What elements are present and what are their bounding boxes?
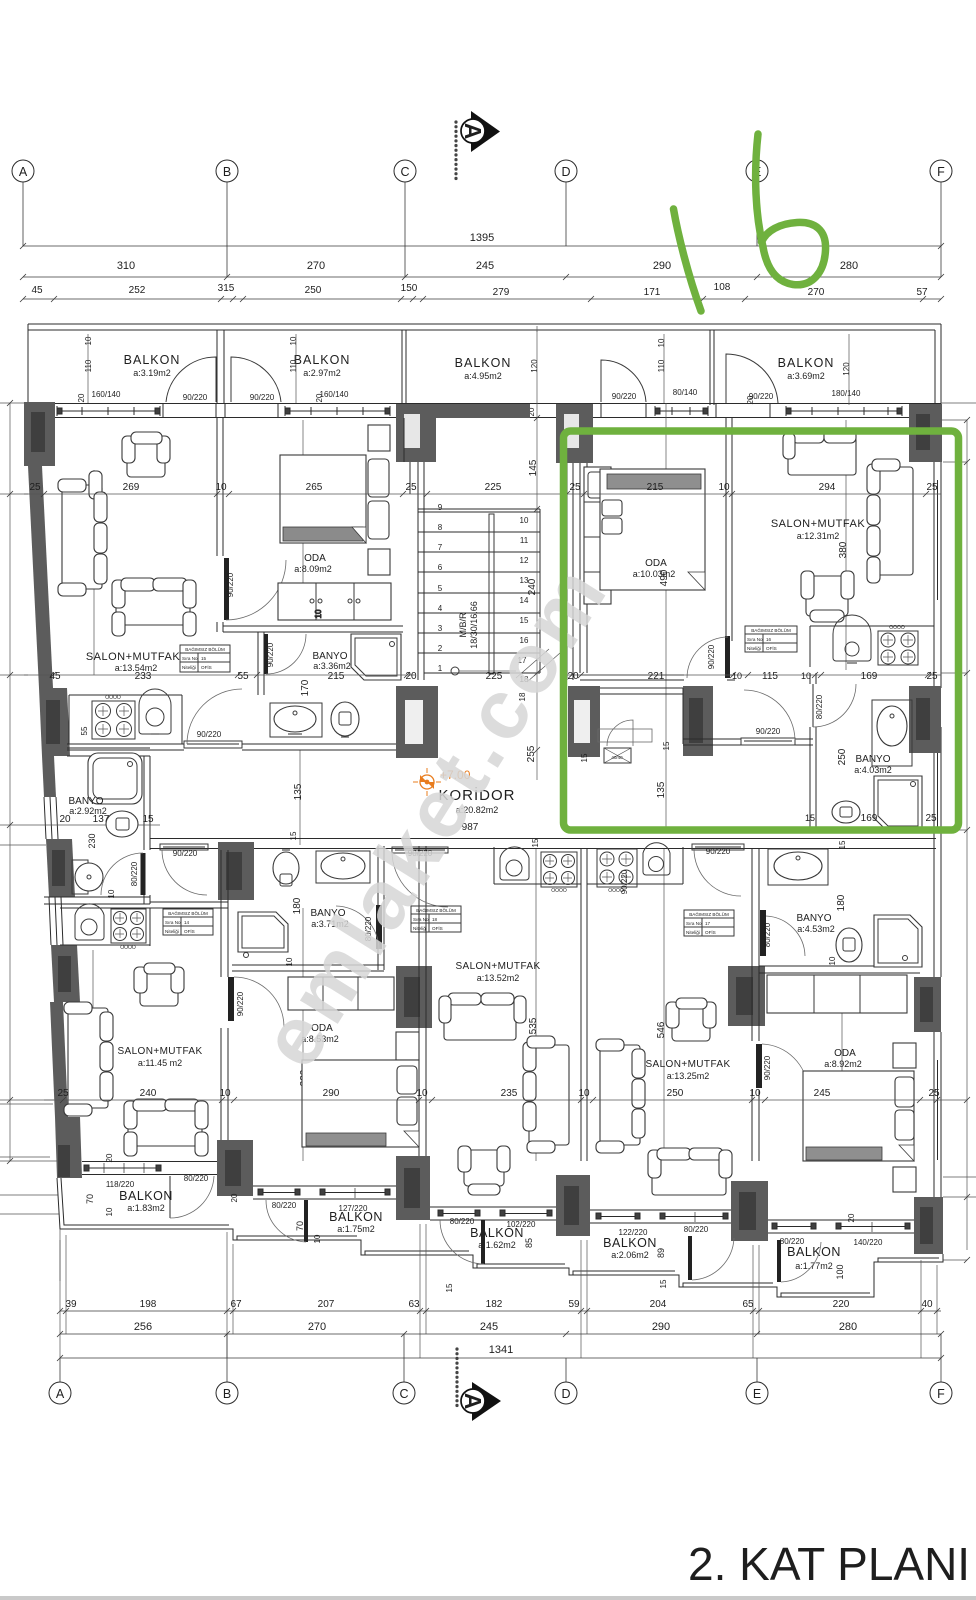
svg-text:BAĞIMSIZ BÖLÜM: BAĞIMSIZ BÖLÜM: [168, 910, 208, 916]
svg-text:3: 3: [438, 624, 443, 633]
svg-text:280: 280: [839, 1321, 857, 1333]
svg-text:BALKON: BALKON: [778, 356, 835, 370]
svg-text:OOOO: OOOO: [608, 888, 624, 894]
svg-text:240: 240: [140, 1088, 157, 1099]
svg-text:BALKON: BALKON: [124, 353, 181, 367]
svg-text:90/220: 90/220: [226, 572, 235, 597]
svg-text:118/220: 118/220: [106, 1180, 135, 1189]
svg-text:80/220: 80/220: [130, 861, 139, 886]
svg-text:67: 67: [230, 1299, 242, 1310]
svg-text:290: 290: [653, 260, 671, 272]
svg-text:6: 6: [438, 563, 443, 572]
svg-text:a:2.92m2: a:2.92m2: [69, 806, 107, 816]
svg-text:150: 150: [401, 283, 418, 294]
svg-text:BALKON: BALKON: [455, 356, 512, 370]
svg-text:20: 20: [405, 671, 417, 682]
svg-text:12: 12: [520, 556, 529, 565]
svg-text:ODA: ODA: [834, 1048, 856, 1059]
svg-text:180: 180: [292, 897, 303, 914]
svg-text:90/220: 90/220: [197, 730, 222, 739]
svg-text:160/140: 160/140: [92, 390, 121, 399]
svg-text:SALON+MUTFAK: SALON+MUTFAK: [645, 1059, 730, 1070]
svg-text:110: 110: [289, 359, 298, 372]
svg-text:a:8.92m2: a:8.92m2: [824, 1059, 862, 1069]
svg-text:10: 10: [105, 1207, 114, 1216]
svg-text:15: 15: [289, 831, 298, 840]
svg-text:SALON+MUTFAK: SALON+MUTFAK: [117, 1046, 202, 1057]
svg-text:15: 15: [531, 838, 540, 847]
svg-text:15: 15: [662, 741, 671, 750]
svg-text:90/220: 90/220: [763, 1055, 772, 1080]
svg-text:OFİS: OFİS: [432, 925, 443, 931]
svg-text:57: 57: [916, 287, 928, 298]
svg-text:120: 120: [530, 359, 539, 373]
svg-text:D: D: [561, 165, 570, 179]
svg-text:11: 11: [520, 536, 529, 545]
svg-text:215: 215: [328, 671, 345, 682]
svg-text:OOOO: OOOO: [120, 945, 136, 951]
svg-text:20: 20: [230, 1193, 239, 1202]
svg-text:20: 20: [77, 393, 86, 402]
svg-text:A: A: [19, 165, 28, 179]
svg-text:10: 10: [313, 1234, 322, 1243]
svg-text:180/140: 180/140: [832, 389, 861, 398]
svg-text:C: C: [399, 1387, 408, 1401]
svg-text:270: 270: [307, 260, 325, 272]
svg-text:10: 10: [289, 336, 298, 345]
svg-text:10: 10: [416, 1088, 428, 1099]
svg-text:279: 279: [493, 287, 510, 298]
svg-text:BANYO: BANYO: [796, 913, 831, 924]
svg-text:90/220: 90/220: [173, 849, 198, 858]
svg-text:245: 245: [480, 1321, 498, 1333]
svg-text:90/220: 90/220: [183, 393, 208, 402]
svg-text:a:1.83m2: a:1.83m2: [127, 1203, 165, 1213]
svg-text:a:2.06m2: a:2.06m2: [611, 1250, 649, 1260]
svg-text:F: F: [937, 165, 945, 179]
svg-text:10: 10: [657, 338, 666, 347]
svg-text:SALON+MUTFAK: SALON+MUTFAK: [455, 961, 540, 972]
svg-text:a:1.77m2: a:1.77m2: [795, 1261, 833, 1271]
svg-text:235: 235: [501, 1088, 518, 1099]
svg-text:25: 25: [925, 813, 937, 824]
svg-text:25: 25: [926, 482, 938, 493]
svg-text:Niteliği: Niteliği: [747, 646, 761, 651]
svg-text:Sıra No: Sıra No: [747, 637, 763, 642]
svg-text:380: 380: [838, 541, 849, 558]
svg-text:10: 10: [732, 671, 742, 681]
svg-text:a:3.36m2: a:3.36m2: [313, 661, 351, 671]
svg-text:250: 250: [667, 1088, 684, 1099]
svg-text:171: 171: [644, 287, 661, 298]
svg-text:233: 233: [135, 671, 152, 682]
svg-text:OFİS: OFİS: [705, 929, 716, 935]
svg-text:a:4.53m2: a:4.53m2: [797, 924, 835, 934]
svg-text:B: B: [223, 165, 231, 179]
svg-text:10: 10: [215, 482, 227, 493]
svg-text:9: 9: [438, 503, 443, 512]
svg-text:10: 10: [107, 889, 116, 898]
svg-text:15: 15: [659, 1279, 668, 1288]
svg-text:169: 169: [861, 671, 878, 682]
svg-text:39: 39: [65, 1299, 77, 1310]
svg-text:310: 310: [117, 260, 135, 272]
svg-text:490: 490: [659, 569, 670, 586]
svg-text:15: 15: [838, 840, 847, 849]
svg-text:265: 265: [306, 482, 323, 493]
svg-text:BALKON: BALKON: [294, 353, 351, 367]
svg-text:25: 25: [405, 482, 417, 493]
svg-text:10: 10: [520, 516, 529, 525]
svg-text:a:4.95m2: a:4.95m2: [464, 371, 502, 381]
svg-text:122/220: 122/220: [619, 1228, 648, 1237]
svg-text:55: 55: [237, 671, 249, 682]
svg-text:198: 198: [140, 1299, 157, 1310]
svg-text:SALON+MUTFAK: SALON+MUTFAK: [86, 651, 180, 663]
svg-text:ODA: ODA: [304, 553, 326, 564]
svg-text:A: A: [460, 123, 486, 140]
svg-text:OOOO: OOOO: [551, 888, 567, 894]
svg-text:B: B: [223, 1387, 231, 1401]
svg-text:230: 230: [87, 833, 97, 848]
svg-text:315: 315: [218, 283, 235, 294]
svg-text:15: 15: [580, 753, 589, 762]
svg-text:7: 7: [438, 543, 443, 552]
svg-text:a:13.25m2: a:13.25m2: [667, 1071, 710, 1081]
svg-text:40/40: 40/40: [611, 755, 623, 760]
svg-text:8: 8: [438, 523, 443, 532]
svg-text:90/220: 90/220: [707, 644, 716, 669]
svg-text:a:11.45 m2: a:11.45 m2: [138, 1058, 182, 1068]
svg-text:ODA: ODA: [645, 558, 667, 569]
svg-text:135: 135: [293, 783, 304, 800]
svg-text:110: 110: [657, 359, 666, 372]
svg-text:5: 5: [438, 584, 443, 593]
svg-text:294: 294: [819, 482, 836, 493]
svg-text:25: 25: [569, 482, 581, 493]
svg-text:546: 546: [656, 1021, 667, 1038]
svg-text:204: 204: [650, 1299, 667, 1310]
svg-text:20: 20: [315, 393, 324, 402]
svg-text:A: A: [460, 1393, 486, 1410]
svg-text:4: 4: [438, 604, 443, 613]
svg-text:1341: 1341: [489, 1344, 513, 1356]
svg-text:F: F: [937, 1387, 945, 1401]
svg-text:170: 170: [300, 679, 311, 696]
svg-text:16: 16: [766, 637, 772, 642]
svg-text:250: 250: [305, 285, 322, 296]
svg-text:55: 55: [80, 726, 89, 735]
svg-text:M/B/R: M/B/R: [458, 612, 468, 638]
svg-text:BALKON: BALKON: [603, 1236, 657, 1250]
svg-text:a:3.69m2: a:3.69m2: [787, 371, 825, 381]
svg-text:10: 10: [219, 1088, 231, 1099]
svg-text:250: 250: [837, 748, 848, 765]
svg-text:127/220: 127/220: [339, 1204, 368, 1213]
svg-text:OOOO: OOOO: [889, 625, 905, 631]
svg-text:25: 25: [928, 1088, 940, 1099]
svg-text:169: 169: [861, 813, 878, 824]
svg-text:OFİS: OFİS: [201, 664, 212, 670]
svg-text:25: 25: [29, 482, 41, 493]
svg-text:90/220: 90/220: [612, 392, 637, 401]
svg-text:252: 252: [129, 285, 146, 296]
svg-text:a:8.09m2: a:8.09m2: [294, 564, 332, 574]
svg-text:280: 280: [840, 260, 858, 272]
svg-text:45: 45: [31, 285, 43, 296]
svg-text:80/220: 80/220: [184, 1174, 209, 1183]
svg-text:245: 245: [814, 1088, 831, 1099]
svg-text:270: 270: [308, 1321, 326, 1333]
svg-text:25: 25: [926, 671, 938, 682]
svg-text:207: 207: [318, 1299, 335, 1310]
svg-text:BAĞIMSIZ BÖLÜM: BAĞIMSIZ BÖLÜM: [185, 646, 225, 652]
svg-text:BANYO: BANYO: [855, 754, 890, 765]
svg-text:100: 100: [835, 1264, 845, 1279]
svg-text:102/220: 102/220: [507, 1220, 536, 1229]
svg-text:10: 10: [314, 609, 323, 618]
svg-text:70: 70: [85, 1194, 95, 1204]
svg-text:OFİS: OFİS: [184, 928, 195, 934]
svg-text:BAĞIMSIZ BÖLÜM: BAĞIMSIZ BÖLÜM: [751, 627, 791, 633]
svg-text:Sıra No: Sıra No: [686, 921, 702, 926]
svg-text:245: 245: [476, 260, 494, 272]
svg-text:D: D: [561, 1387, 570, 1401]
svg-text:80/140: 80/140: [673, 388, 698, 397]
svg-text:90/220: 90/220: [706, 847, 731, 856]
svg-text:290: 290: [652, 1321, 670, 1333]
svg-text:90/220: 90/220: [266, 642, 275, 667]
svg-text:70: 70: [295, 1221, 305, 1231]
svg-text:10: 10: [749, 1088, 761, 1099]
svg-text:182: 182: [486, 1299, 503, 1310]
svg-text:a:13.52m2: a:13.52m2: [477, 973, 520, 983]
svg-text:15: 15: [142, 814, 154, 825]
svg-text:180: 180: [836, 894, 847, 911]
svg-text:BALKON: BALKON: [787, 1245, 841, 1259]
svg-text:80/220: 80/220: [763, 922, 772, 947]
svg-text:90/220: 90/220: [756, 727, 781, 736]
svg-text:18/30/16.66: 18/30/16.66: [469, 601, 479, 649]
svg-text:Niteliği: Niteliği: [165, 929, 179, 934]
svg-text:256: 256: [134, 1321, 152, 1333]
svg-text:10: 10: [84, 336, 93, 345]
svg-text:15: 15: [201, 656, 207, 661]
svg-text:220: 220: [833, 1299, 850, 1310]
svg-text:535: 535: [528, 1017, 539, 1034]
svg-text:Niteliği: Niteliği: [182, 665, 196, 670]
svg-text:2. KAT PLANI: 2. KAT PLANI: [688, 1538, 970, 1590]
svg-text:80/220: 80/220: [684, 1225, 709, 1234]
svg-text:A: A: [56, 1387, 65, 1401]
svg-text:a:2.97m2: a:2.97m2: [303, 368, 341, 378]
svg-text:80/220: 80/220: [450, 1217, 475, 1226]
svg-text:85: 85: [524, 1238, 534, 1248]
svg-text:Sıra No: Sıra No: [165, 920, 181, 925]
svg-text:C: C: [400, 165, 409, 179]
svg-text:BALKON: BALKON: [119, 1189, 173, 1203]
svg-text:90/220: 90/220: [250, 393, 275, 402]
svg-text:270: 270: [808, 287, 825, 298]
svg-text:225: 225: [485, 482, 502, 493]
svg-text:10: 10: [828, 956, 837, 965]
svg-text:18: 18: [432, 917, 438, 922]
svg-text:80/220: 80/220: [272, 1201, 297, 1210]
svg-text:40: 40: [921, 1299, 933, 1310]
svg-text:25: 25: [57, 1088, 69, 1099]
svg-text:1395: 1395: [470, 232, 494, 244]
svg-text:90/220: 90/220: [236, 991, 245, 1016]
svg-text:BAĞIMSIZ BÖLÜM: BAĞIMSIZ BÖLÜM: [689, 911, 729, 917]
svg-text:E: E: [753, 1387, 761, 1401]
svg-text:10: 10: [801, 671, 811, 681]
svg-text:a:12.31m2: a:12.31m2: [797, 531, 840, 541]
svg-text:2: 2: [438, 644, 443, 653]
svg-text:135: 135: [656, 781, 667, 798]
svg-text:65: 65: [742, 1299, 754, 1310]
svg-text:140/220: 140/220: [854, 1238, 883, 1247]
svg-text:63: 63: [408, 1299, 420, 1310]
svg-text:59: 59: [568, 1299, 580, 1310]
svg-text:110: 110: [84, 359, 93, 372]
svg-text:108: 108: [714, 282, 731, 293]
svg-text:221: 221: [648, 671, 665, 682]
svg-text:1: 1: [438, 664, 443, 673]
svg-text:215: 215: [647, 482, 664, 493]
svg-text:290: 290: [323, 1088, 340, 1099]
svg-text:17: 17: [705, 921, 711, 926]
svg-text:OFİS: OFİS: [766, 645, 777, 651]
svg-text:Sıra No: Sıra No: [182, 656, 198, 661]
svg-text:10: 10: [718, 482, 730, 493]
svg-text:269: 269: [123, 482, 140, 493]
svg-text:OOOO: OOOO: [105, 695, 121, 701]
svg-text:15: 15: [445, 1283, 454, 1292]
svg-text:115: 115: [762, 671, 778, 682]
svg-text:10: 10: [578, 1088, 590, 1099]
svg-text:SALON+MUTFAK: SALON+MUTFAK: [771, 518, 865, 530]
svg-text:15: 15: [805, 813, 815, 823]
svg-text:45: 45: [49, 671, 61, 682]
svg-text:20: 20: [105, 1153, 114, 1162]
svg-text:a:1.75m2: a:1.75m2: [337, 1224, 375, 1234]
svg-text:Niteliği: Niteliği: [686, 930, 700, 935]
svg-text:14: 14: [184, 920, 190, 925]
svg-text:a:3.19m2: a:3.19m2: [133, 368, 171, 378]
svg-text:120: 120: [842, 362, 851, 376]
svg-text:80/220: 80/220: [780, 1237, 805, 1246]
svg-text:80/220: 80/220: [815, 694, 824, 719]
svg-text:20: 20: [847, 1213, 856, 1222]
svg-text:89: 89: [656, 1248, 666, 1258]
